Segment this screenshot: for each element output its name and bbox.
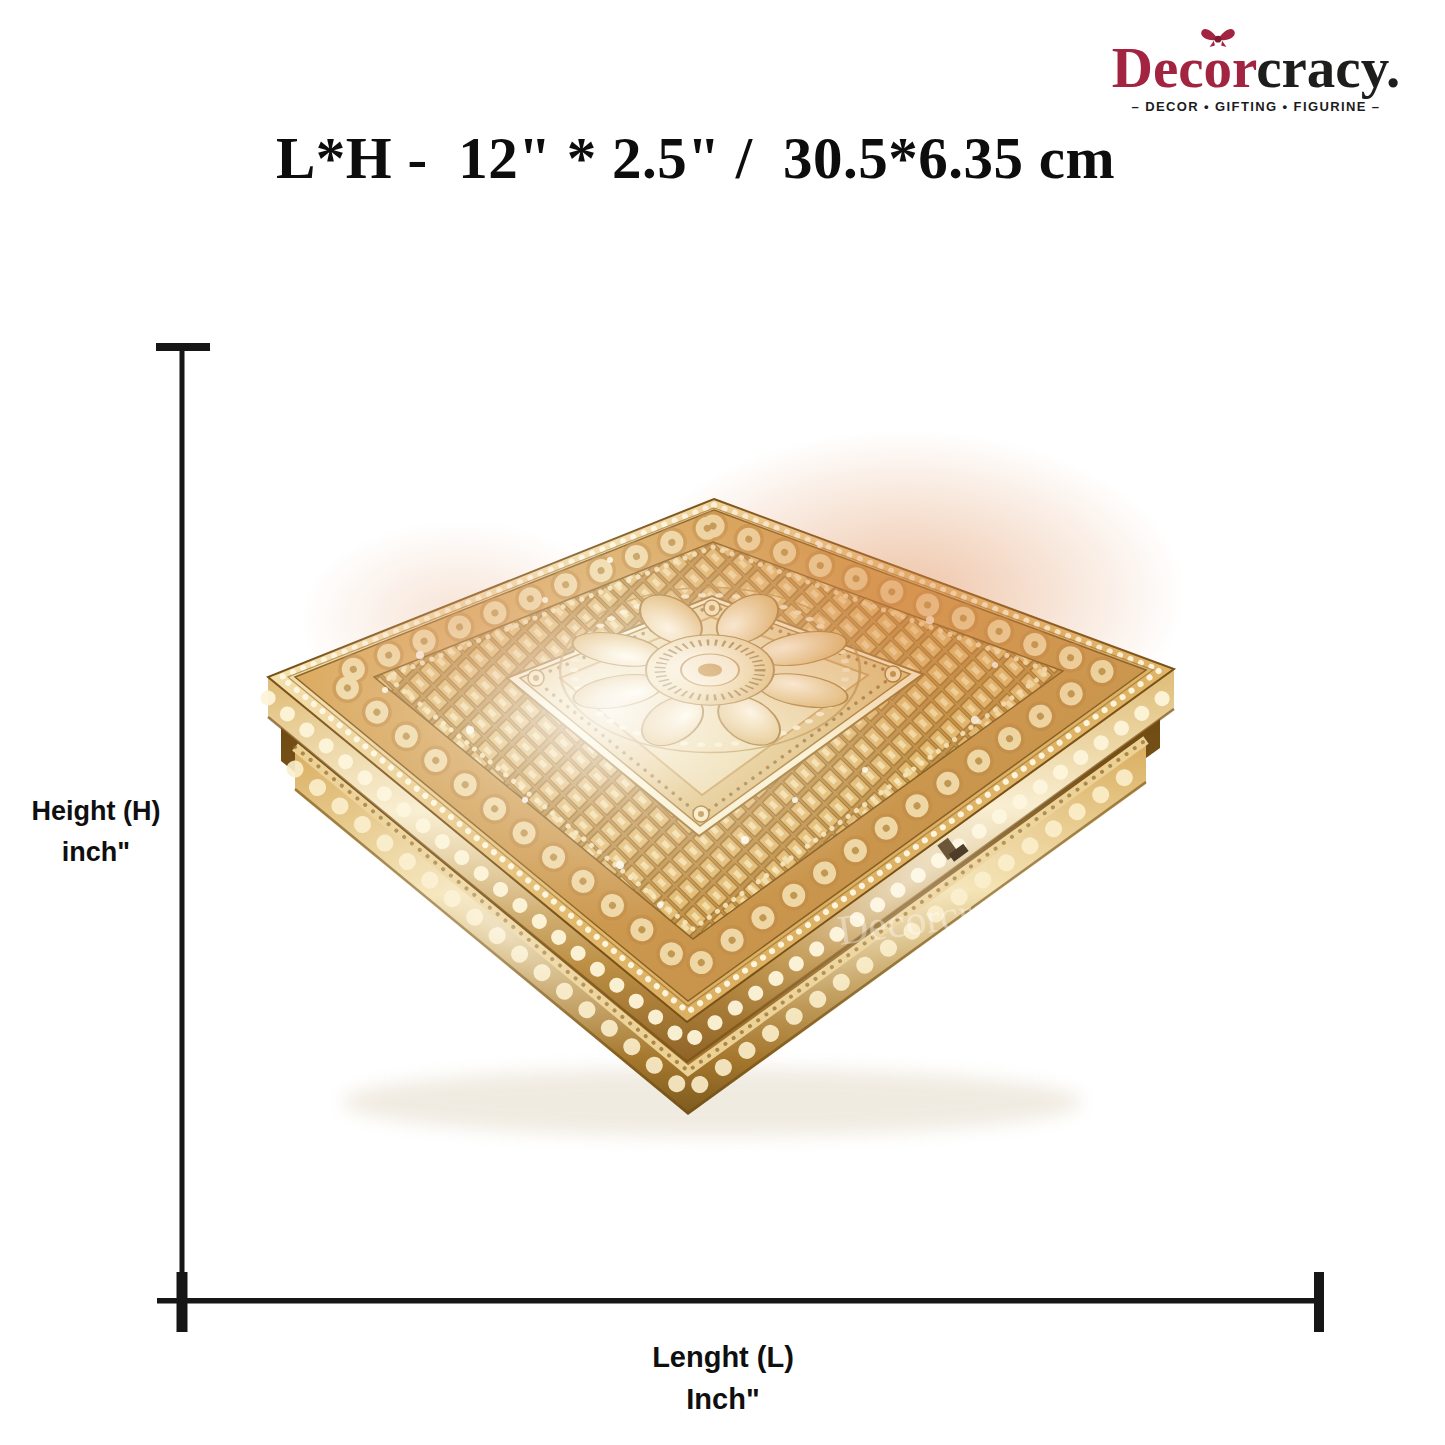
- length-label-line2: Inch": [573, 1378, 873, 1420]
- logo-text-cracy: cracy.: [1256, 36, 1400, 99]
- length-line-right-tick: [1314, 1272, 1324, 1332]
- brand-wordmark: Decorcracy.: [1112, 38, 1401, 98]
- length-line-bar: [157, 1298, 1322, 1304]
- dimension-title: L*H - 12" * 2.5" / 30.5*6.35 cm: [276, 124, 1115, 193]
- length-line-left-tick: [177, 1272, 188, 1332]
- logo-letter-o: o: [1203, 38, 1232, 98]
- length-label-line1: Lenght (L): [573, 1336, 873, 1378]
- bow-icon: [1199, 24, 1237, 47]
- height-label-line1: Height (H): [8, 791, 184, 832]
- length-dimension-line: [157, 1272, 1324, 1332]
- length-axis-label: Lenght (L) Inch": [573, 1336, 873, 1420]
- brand-logo: Decorcracy. – DECOR • GIFTING • FIGURINE…: [1082, 38, 1430, 114]
- product-dimension-image: Decorcracy Decorcracy. – DECOR • GIFTING…: [0, 0, 1445, 1445]
- gift-box-photo: Decorcracy: [268, 430, 1185, 1136]
- height-axis-label: Height (H) inch": [8, 791, 184, 872]
- lid-copper-sheen-2: [300, 520, 620, 720]
- logo-text-dec: Dec: [1112, 36, 1204, 99]
- brand-tagline: – DECOR • GIFTING • FIGURINE –: [1131, 99, 1380, 114]
- height-label-line2: inch": [8, 832, 184, 873]
- lid-copper-sheen: [625, 430, 1185, 760]
- scene-canvas: Decorcracy: [0, 0, 1445, 1445]
